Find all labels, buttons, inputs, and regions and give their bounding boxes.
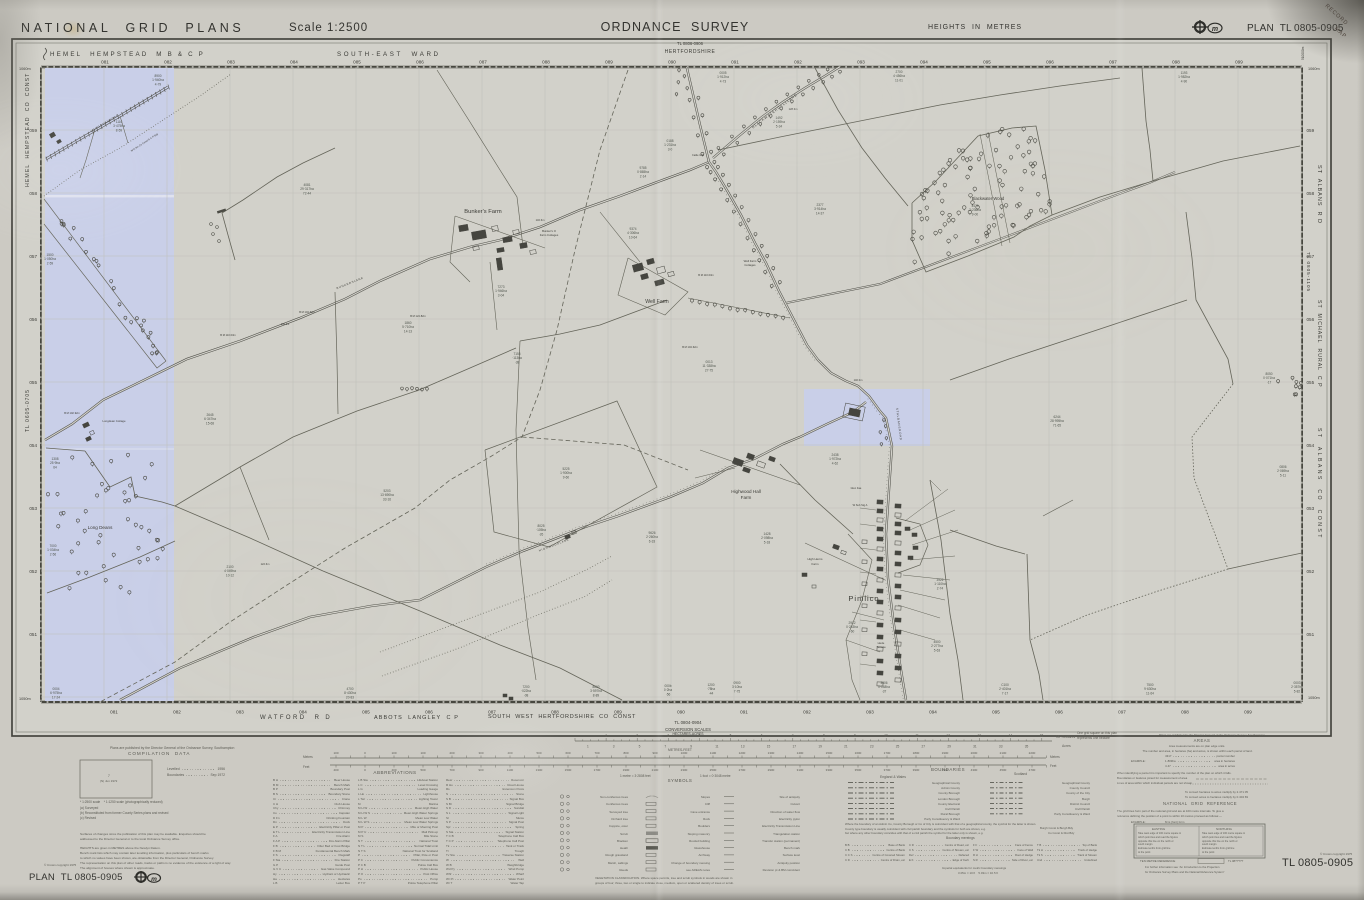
svg-text:055: 055: [1307, 380, 1315, 385]
svg-text:1060m: 1060m: [1308, 67, 1320, 71]
svg-text:087: 087: [479, 60, 487, 65]
svg-text:5: 5: [730, 734, 732, 738]
svg-text:m: m: [1212, 26, 1218, 33]
svg-text:300: 300: [478, 751, 483, 755]
svg-text:098: 098: [1172, 60, 1180, 65]
svg-text:140·0m: 140·0m: [854, 378, 863, 382]
svg-text:2·14: 2·14: [640, 174, 647, 178]
svg-text:4·73: 4·73: [720, 79, 727, 83]
svg-text:2700: 2700: [739, 768, 746, 772]
svg-text:1: 1: [605, 734, 607, 738]
svg-text:2900: 2900: [768, 768, 775, 772]
svg-text:1900: 1900: [623, 768, 630, 772]
svg-text:2500: 2500: [710, 768, 717, 772]
svg-text:128·3m: 128·3m: [789, 107, 798, 111]
svg-text:29: 29: [947, 745, 951, 749]
svg-text:052: 052: [29, 569, 37, 574]
svg-text:Cattle Grid: Cattle Grid: [692, 154, 705, 157]
svg-text:15·68: 15·68: [206, 421, 214, 425]
svg-text:900: 900: [478, 768, 483, 772]
svg-text:2000: 2000: [971, 751, 978, 755]
svg-text:4500: 4500: [1000, 768, 1007, 772]
svg-text:B M 104·62m: B M 104·62m: [682, 345, 698, 349]
svg-text:1800: 1800: [913, 751, 920, 755]
svg-text:6·33: 6·33: [649, 539, 656, 543]
svg-text:33·16: 33·16: [383, 497, 391, 501]
svg-text:100: 100: [333, 751, 338, 755]
svg-text:081: 081: [101, 60, 109, 65]
svg-text:10: 10: [884, 734, 888, 738]
svg-text:058: 058: [1307, 191, 1315, 196]
svg-text:9·00: 9·00: [972, 212, 979, 216]
svg-text:091: 091: [731, 60, 739, 65]
svg-text:11·01: 11·01: [895, 78, 903, 82]
svg-text:3100: 3100: [797, 768, 804, 772]
svg-text:Farm: Farm: [812, 562, 820, 566]
svg-text:096: 096: [1046, 60, 1054, 65]
svg-text:1300: 1300: [768, 751, 775, 755]
svg-text:053: 053: [1307, 506, 1315, 511]
svg-text:7: 7: [792, 734, 794, 738]
svg-text:059: 059: [1307, 128, 1315, 133]
svg-text:5·34: 5·34: [776, 124, 783, 128]
svg-text:089: 089: [605, 60, 613, 65]
svg-text:·60: ·60: [850, 629, 855, 633]
svg-text:3·0: 3·0: [668, 147, 673, 151]
svg-text:17: 17: [793, 745, 797, 749]
svg-text:72·44: 72·44: [303, 191, 311, 195]
svg-text:Terrace: Terrace: [876, 645, 886, 649]
svg-text:700: 700: [594, 751, 599, 755]
svg-text:092: 092: [794, 60, 802, 65]
svg-text:Bunker's Farm: Bunker's Farm: [464, 209, 502, 215]
svg-text:2100: 2100: [1000, 751, 1007, 755]
svg-text:700: 700: [449, 768, 454, 772]
svg-text:25: 25: [896, 745, 900, 749]
svg-text:B M 104·62m: B M 104·62m: [299, 310, 315, 314]
svg-text:1100: 1100: [710, 751, 717, 755]
svg-text:082: 082: [173, 710, 181, 715]
svg-text:054: 054: [1307, 443, 1315, 448]
svg-text:10·64: 10·64: [629, 235, 637, 239]
svg-text:1300: 1300: [536, 768, 543, 772]
svg-text:17·24: 17·24: [52, 695, 60, 699]
svg-text:20·83: 20·83: [346, 695, 354, 699]
svg-text:9: 9: [854, 734, 856, 738]
svg-text:1: 1: [587, 745, 589, 749]
svg-text:1500: 1500: [565, 768, 572, 772]
svg-text:099: 099: [1235, 60, 1243, 65]
svg-text:3300: 3300: [826, 768, 833, 772]
svg-text:800: 800: [623, 751, 628, 755]
svg-text:3·04: 3·04: [498, 293, 505, 297]
svg-text:14·37: 14·37: [816, 211, 824, 215]
svg-text:Cottages: Cottages: [744, 263, 756, 267]
svg-text:Highwood Hall: Highwood Hall: [731, 489, 761, 494]
svg-text:W Sub Stg A: W Sub Stg A: [853, 503, 868, 507]
svg-text:095: 095: [983, 60, 991, 65]
svg-text:8·59: 8·59: [116, 128, 123, 132]
svg-text:3700: 3700: [884, 768, 891, 772]
svg-text:084: 084: [290, 60, 298, 65]
svg-text:400: 400: [507, 751, 512, 755]
svg-text:7: 7: [664, 745, 666, 749]
svg-text:B M 124·82m: B M 124·82m: [410, 314, 426, 318]
svg-text:090: 090: [668, 60, 676, 65]
svg-text:4·90: 4·90: [1181, 79, 1188, 83]
svg-text:Long Deans: Long Deans: [88, 525, 113, 530]
svg-text:1600: 1600: [855, 751, 862, 755]
svg-text:900: 900: [652, 751, 657, 755]
svg-text:056: 056: [1307, 317, 1315, 322]
svg-text:082: 082: [164, 60, 172, 65]
svg-text:090: 090: [677, 710, 685, 715]
svg-text:Pimlico: Pimlico: [848, 594, 879, 603]
svg-text:085: 085: [353, 60, 361, 65]
svg-text:1060m: 1060m: [19, 67, 31, 71]
svg-text:054: 054: [29, 443, 37, 448]
svg-text:056: 056: [29, 317, 37, 322]
svg-text:Farm: Farm: [741, 495, 752, 500]
svg-text:B M 110·03m: B M 110·03m: [698, 273, 713, 277]
svg-text:·56: ·56: [666, 692, 671, 696]
svg-text:200: 200: [449, 751, 454, 755]
svg-text:5·82: 5·82: [1294, 689, 1301, 693]
svg-text:2: 2: [636, 734, 638, 738]
svg-text:122·6m: 122·6m: [261, 562, 270, 566]
svg-text:4700: 4700: [1029, 768, 1036, 772]
svg-text:081: 081: [110, 710, 118, 715]
svg-text:055: 055: [29, 380, 37, 385]
svg-text:400: 400: [333, 768, 338, 772]
svg-text:088: 088: [542, 60, 550, 65]
svg-text:086: 086: [416, 60, 424, 65]
svg-text:B M 102·92m: B M 102·92m: [64, 411, 80, 415]
svg-text:11: 11: [715, 745, 719, 749]
svg-text:1700: 1700: [884, 751, 891, 755]
svg-text:093: 093: [857, 60, 865, 65]
svg-text:096: 096: [1055, 710, 1063, 715]
svg-text:·37: ·37: [882, 689, 887, 693]
svg-text:098: 098: [1181, 710, 1189, 715]
svg-text:058: 058: [29, 191, 37, 196]
svg-text:3: 3: [613, 745, 615, 749]
svg-text:11: 11: [915, 734, 919, 738]
svg-text:14·13: 14·13: [404, 329, 412, 333]
svg-text:19: 19: [818, 745, 822, 749]
svg-text:091: 091: [740, 710, 748, 715]
svg-text:097: 097: [1118, 710, 1126, 715]
svg-text:4·79: 4·79: [155, 82, 162, 86]
svg-text:B M 110·03m: B M 110·03m: [220, 333, 235, 337]
svg-text:13: 13: [741, 745, 745, 749]
svg-text:100: 100: [420, 751, 425, 755]
svg-text:1700: 1700: [594, 768, 601, 772]
svg-text:Glen Fae: Glen Fae: [851, 486, 862, 490]
svg-text:5·18: 5·18: [764, 540, 771, 544]
svg-text:5·63: 5·63: [934, 648, 941, 652]
svg-text:8: 8: [823, 734, 825, 738]
svg-text:10·12: 10·12: [226, 573, 234, 577]
svg-text:097: 097: [1109, 60, 1117, 65]
svg-text:1400: 1400: [797, 751, 804, 755]
svg-text:14: 14: [1009, 734, 1013, 738]
svg-text:099: 099: [1244, 710, 1252, 715]
svg-text:m: m: [151, 876, 157, 883]
svg-text:35: 35: [1025, 745, 1029, 749]
svg-text:052: 052: [1307, 569, 1315, 574]
svg-text:600: 600: [565, 751, 570, 755]
svg-text:Blackwater Wood: Blackwater Wood: [972, 196, 1005, 201]
svg-text:·17: ·17: [1267, 380, 1272, 384]
svg-text:31: 31: [973, 745, 977, 749]
svg-text:High Herns: High Herns: [807, 557, 823, 561]
svg-text:33: 33: [999, 745, 1003, 749]
svg-text:0: 0: [364, 751, 366, 755]
svg-text:1200: 1200: [739, 751, 746, 755]
svg-text:057: 057: [29, 254, 37, 259]
svg-text:1500: 1500: [826, 751, 833, 755]
svg-text:095: 095: [992, 710, 1000, 715]
svg-text:64: 64: [53, 465, 57, 469]
svg-text:139·2m: 139·2m: [281, 323, 289, 326]
svg-text:100: 100: [391, 751, 396, 755]
svg-text:7·17: 7·17: [1002, 691, 1009, 695]
svg-text:092: 092: [803, 710, 811, 715]
svg-text:053: 053: [29, 506, 37, 511]
svg-text:7·75: 7·75: [734, 689, 741, 693]
svg-text:1050m: 1050m: [1308, 696, 1320, 700]
svg-text:085: 085: [362, 710, 370, 715]
svg-text:2100: 2100: [652, 768, 659, 772]
svg-text:21: 21: [844, 745, 848, 749]
svg-text:·26: ·26: [539, 532, 544, 536]
svg-text:093: 093: [866, 710, 874, 715]
svg-text:2·59: 2·59: [47, 261, 54, 265]
svg-text:11·64: 11·64: [1146, 691, 1154, 695]
svg-text:13: 13: [978, 734, 982, 738]
svg-text:3500: 3500: [855, 768, 862, 772]
svg-text:1050m: 1050m: [19, 697, 31, 701]
svg-text:051: 051: [1307, 632, 1315, 637]
svg-text:27: 27: [922, 745, 926, 749]
svg-text:083: 083: [227, 60, 235, 65]
svg-text:71·65: 71·65: [1053, 423, 1061, 427]
svg-text:Farm Cottages: Farm Cottages: [540, 233, 559, 237]
svg-text:051: 051: [29, 632, 37, 637]
svg-text:132·6m: 132·6m: [536, 218, 545, 222]
svg-text:2300: 2300: [681, 768, 688, 772]
svg-text:23: 23: [870, 745, 874, 749]
svg-text:4·62: 4·62: [832, 461, 839, 465]
svg-text:1900: 1900: [942, 751, 949, 755]
svg-text:2200: 2200: [1029, 751, 1036, 755]
svg-text:1100: 1100: [507, 768, 514, 772]
svg-text:2·56: 2·56: [50, 552, 57, 556]
svg-text:Longdean Cottage: Longdean Cottage: [102, 419, 125, 423]
svg-text:·08: ·08: [524, 693, 529, 697]
svg-text:·44: ·44: [709, 691, 714, 695]
svg-text:094: 094: [920, 60, 928, 65]
svg-text:5: 5: [639, 745, 641, 749]
svg-text:500: 500: [536, 751, 541, 755]
svg-text:5·11: 5·11: [1280, 473, 1286, 477]
svg-text:12: 12: [946, 734, 950, 738]
svg-text:6: 6: [761, 734, 763, 738]
svg-text:·38: ·38: [515, 360, 520, 364]
svg-text:510000m: 510000m: [1301, 46, 1305, 60]
svg-text:083: 083: [236, 710, 244, 715]
svg-text:9·60: 9·60: [563, 475, 570, 479]
svg-text:2·74: 2·74: [937, 586, 944, 590]
svg-text:15: 15: [767, 745, 771, 749]
svg-text:15: 15: [1040, 734, 1044, 738]
svg-text:8·89: 8·89: [593, 693, 600, 697]
svg-text:Well Farm: Well Farm: [645, 299, 669, 305]
svg-text:094: 094: [929, 710, 937, 715]
svg-text:27·75: 27·75: [705, 368, 713, 372]
